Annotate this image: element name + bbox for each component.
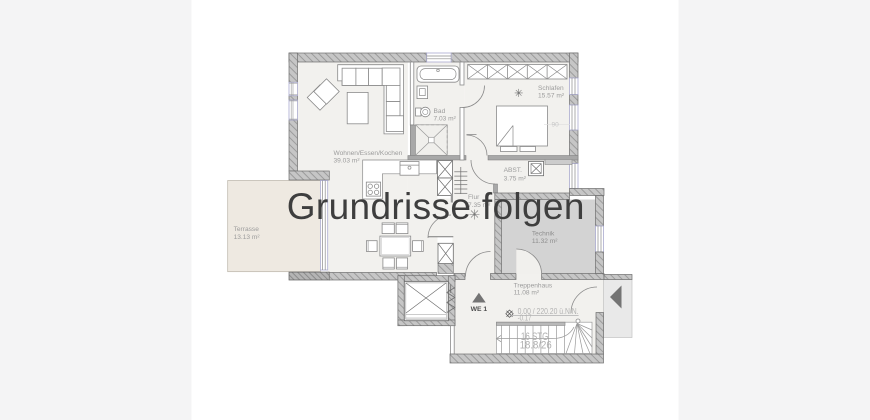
svg-text:ABST.: ABST.: [504, 167, 522, 174]
svg-text:13.13 m²: 13.13 m²: [234, 234, 261, 241]
svg-text:15.57 m²: 15.57 m²: [538, 93, 565, 100]
svg-text:Wohnen/Essen/Kochen: Wohnen/Essen/Kochen: [334, 150, 403, 157]
svg-text:Technik: Technik: [532, 231, 555, 238]
svg-text:18.8/26: 18.8/26: [520, 340, 552, 352]
svg-text:Bad: Bad: [434, 108, 446, 115]
svg-text:11.08 m²: 11.08 m²: [514, 290, 540, 297]
svg-text:90: 90: [552, 121, 560, 128]
svg-text:Grundrisse folgen: Grundrisse folgen: [287, 186, 585, 227]
svg-text:-0.17: -0.17: [518, 313, 532, 323]
svg-text:7.03 m²: 7.03 m²: [434, 115, 457, 122]
svg-text:3.75 m²: 3.75 m²: [504, 176, 527, 183]
svg-text:Terrasse: Terrasse: [234, 226, 260, 233]
svg-text:11.32 m²: 11.32 m²: [532, 238, 558, 245]
svg-text:39.03 m²: 39.03 m²: [334, 158, 361, 165]
svg-text:WE 1: WE 1: [471, 306, 488, 313]
svg-text:Schlafen: Schlafen: [538, 85, 564, 92]
